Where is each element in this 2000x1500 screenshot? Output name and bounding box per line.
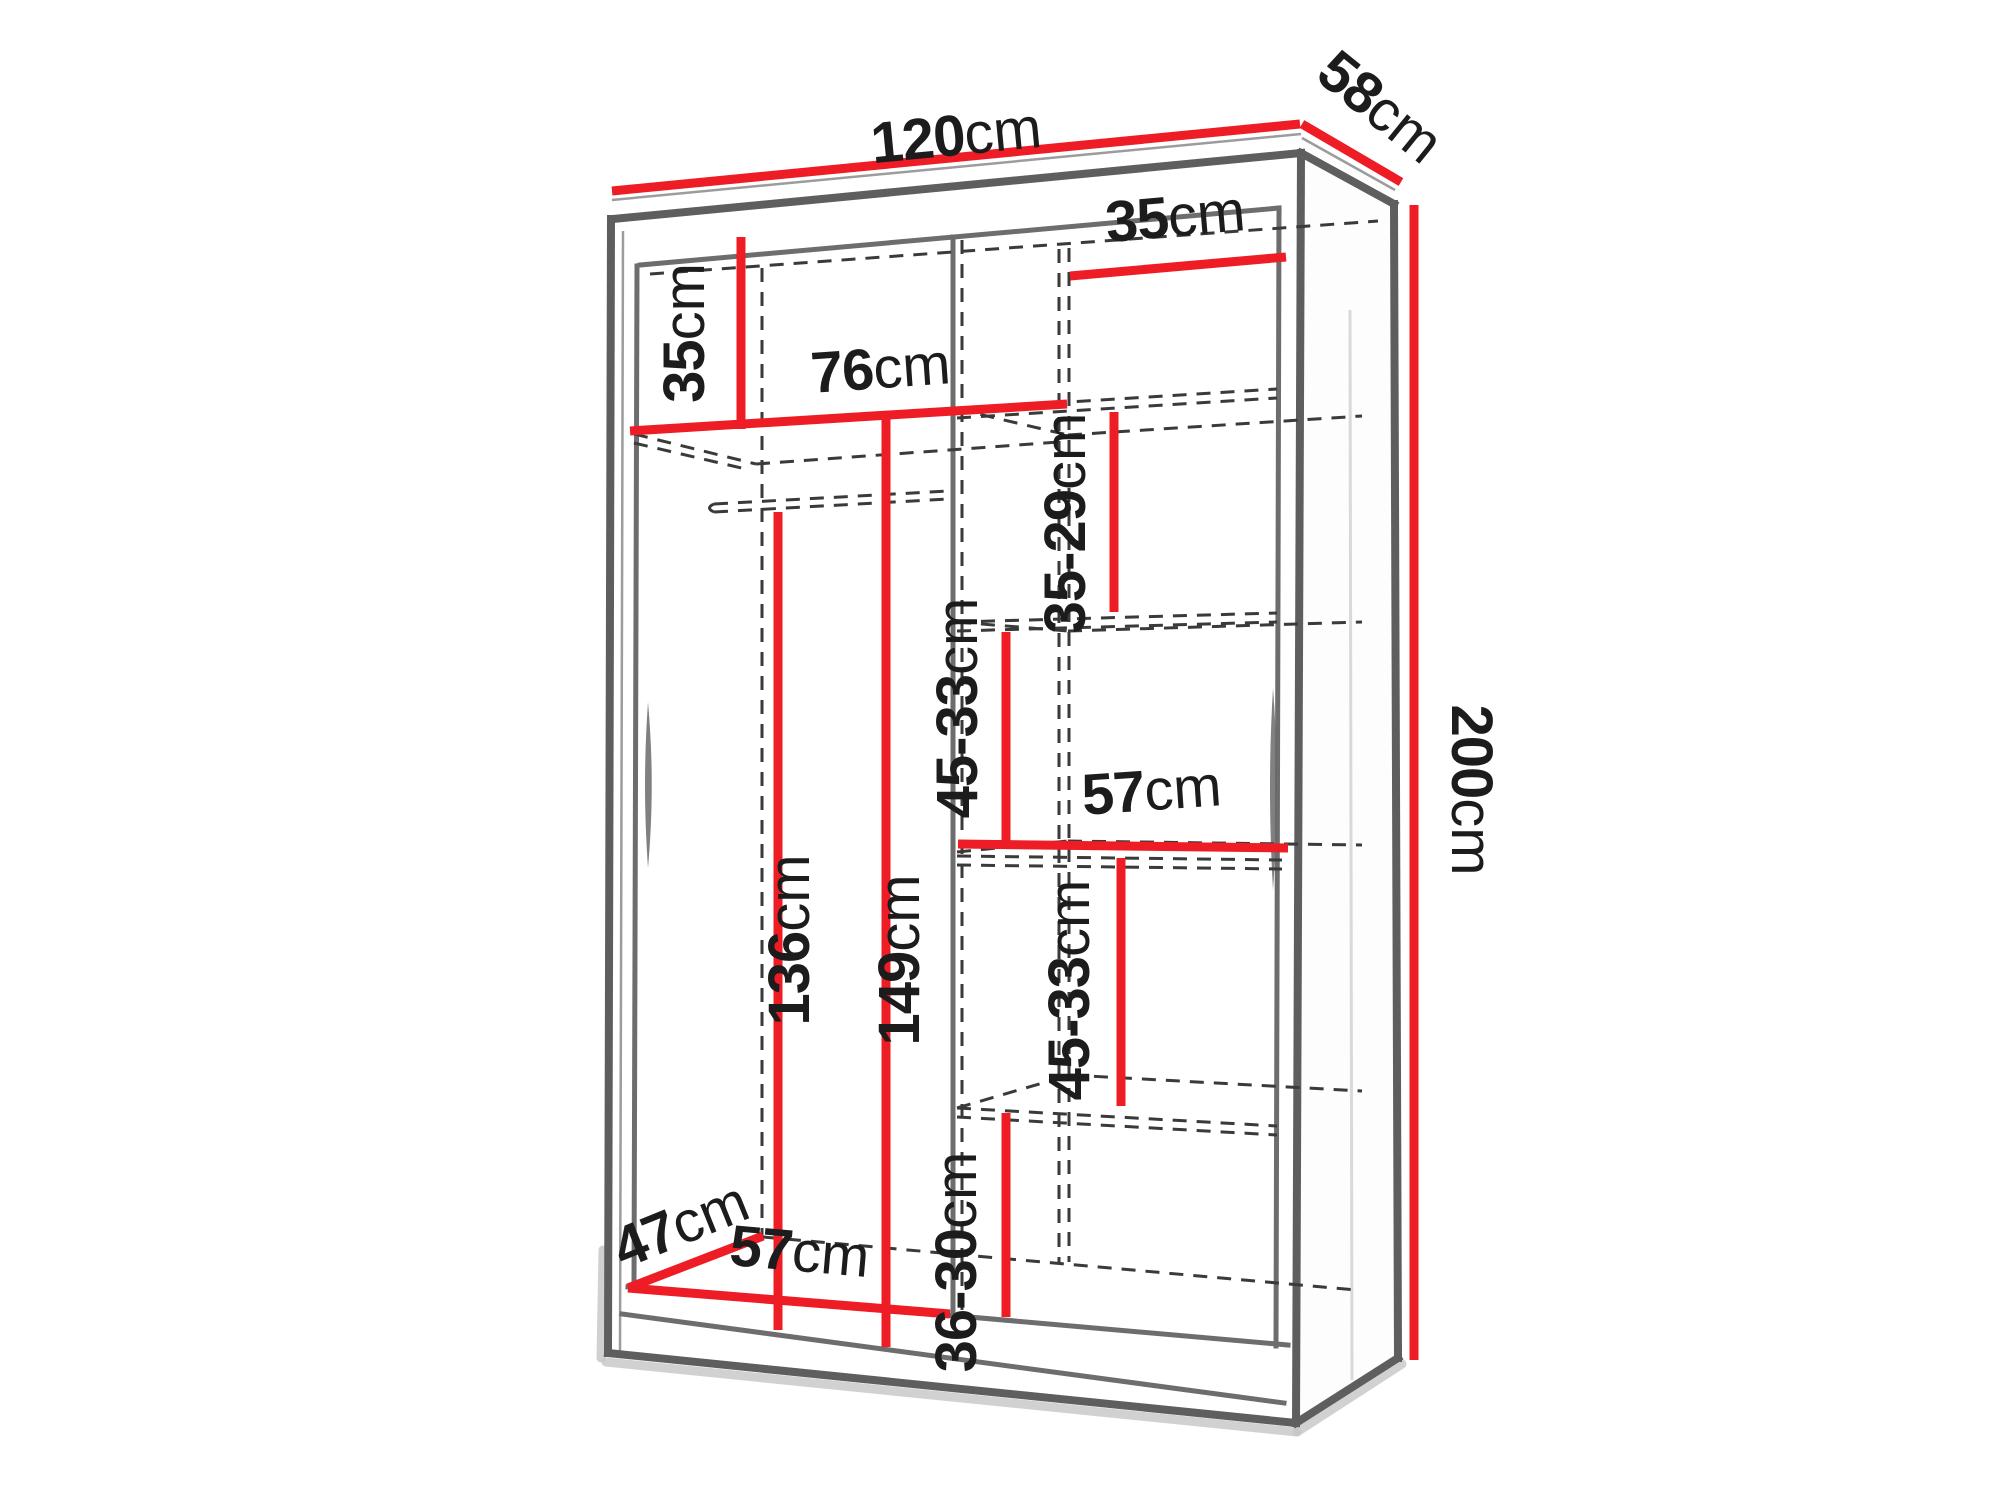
side-panel-seam	[1350, 310, 1352, 1380]
dim-label-left-section-height: 149cm	[867, 874, 932, 1045]
dim-label-hanging-space-height: 136cm	[757, 854, 822, 1025]
left-outer-edge	[608, 219, 611, 1353]
dim-label-bottom-compartment-height: 36-30cm	[924, 1152, 989, 1373]
dim-label-middle-shelf-width: 57cm	[1080, 753, 1224, 828]
right-front-edge	[1296, 153, 1301, 1423]
dim-label-shelf-gap-upper: 45-33cm	[925, 598, 990, 819]
dim-label-shelf-gap-top: 35-29cm	[1033, 413, 1098, 634]
shadow-left	[601, 1250, 603, 1358]
diagram-canvas: 120cm 58cm 200cm 35cm 35cm 76cm 35-29cm …	[0, 0, 2000, 1500]
left-inner-edge	[634, 266, 637, 1287]
dim-label-height-right: 200cm	[1439, 704, 1504, 875]
dim-label-right-section-width: 35cm	[1103, 178, 1248, 255]
back-right-edge	[1394, 204, 1398, 1358]
wardrobe-dimension-diagram: 120cm 58cm 200cm 35cm 35cm 76cm 35-29cm …	[0, 0, 2000, 1500]
dim-line-middle-shelf-width	[958, 844, 1288, 848]
dim-label-bottom-section-width: 57cm	[727, 1213, 872, 1290]
side-face	[1296, 153, 1398, 1423]
dim-label-shelf-gap-lower: 45-33cm	[1037, 880, 1102, 1101]
dim-label-left-section-width: 76cm	[809, 331, 953, 406]
dim-label-top-compartment-height: 35cm	[652, 263, 717, 403]
